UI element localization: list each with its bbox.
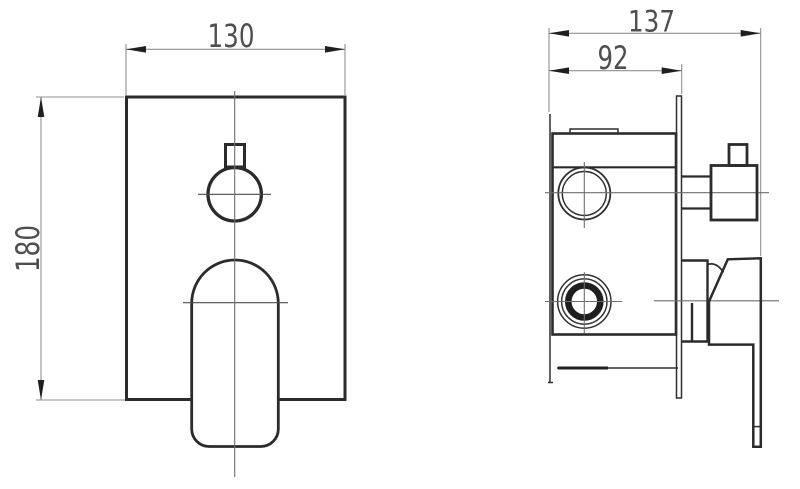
dimension-label-137: 137 <box>628 5 675 39</box>
dimension-label-180: 180 <box>9 225 47 272</box>
arrowhead-left <box>549 30 569 37</box>
arrowhead-down <box>38 380 45 400</box>
lever-pivot-arc <box>708 264 724 273</box>
arrowhead-left <box>549 67 569 74</box>
front-view: 130 180 <box>9 17 345 477</box>
dimension-front-width: 130 <box>126 17 345 95</box>
dimension-label-92: 92 <box>598 39 629 77</box>
dimension-front-height: 180 <box>9 97 125 400</box>
mixer-valve-technical-drawing: 130 180 137 <box>0 0 800 489</box>
arrowhead-right <box>662 67 682 74</box>
wall-plate-outline <box>127 97 346 400</box>
arrowhead-right <box>741 30 761 37</box>
side-view: 137 92 <box>545 5 779 447</box>
dimension-side-body-depth: 92 <box>549 39 682 94</box>
lever-handle-side-outline <box>709 258 761 447</box>
arrowhead-left <box>126 46 146 53</box>
technical-drawing-canvas: 130 180 137 <box>0 0 800 489</box>
diverter-knob-button <box>729 145 747 166</box>
dimension-side-total-depth: 137 <box>549 5 761 257</box>
mounting-tab-top <box>570 129 618 134</box>
arrowhead-up <box>38 97 45 117</box>
arrowhead-right <box>325 46 345 53</box>
dimension-label-130: 130 <box>208 17 255 55</box>
wall-plate-edge <box>677 96 682 398</box>
